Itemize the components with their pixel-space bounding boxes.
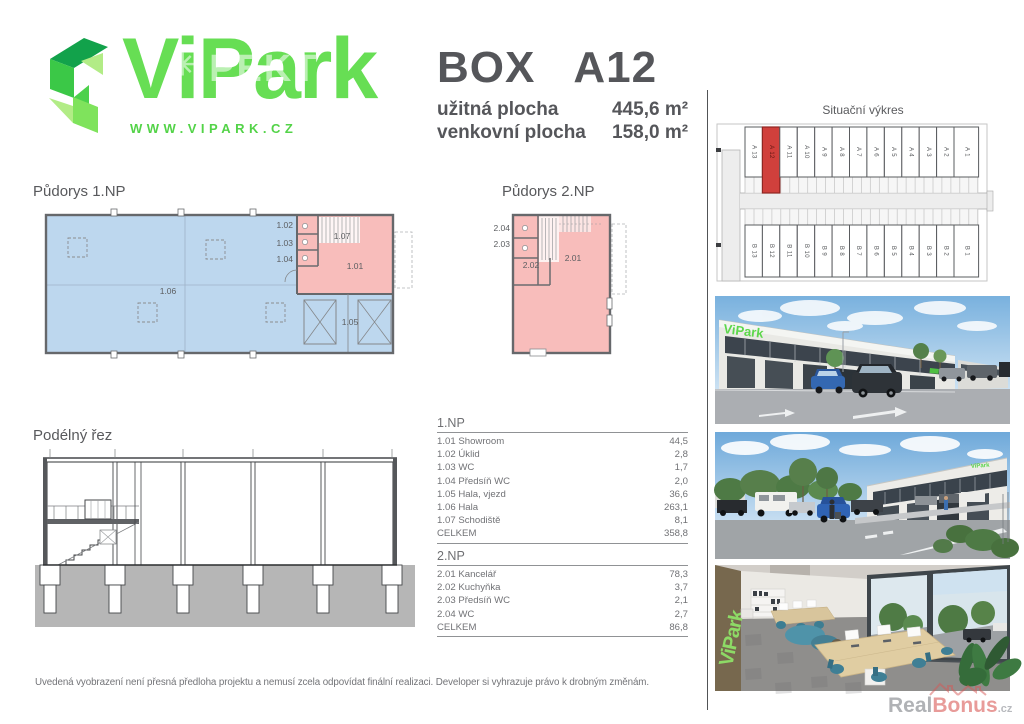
- fixture-1: [302, 223, 307, 228]
- situation-unit-label: B 2: [942, 246, 948, 256]
- photo-office-interior: ViPark: [715, 565, 1010, 691]
- room-label: 2.02: [523, 260, 540, 270]
- table-rows-2np: 2.01 Kancelář78,32.02 Kuchyňka3,72.03 Př…: [437, 566, 688, 637]
- room-area: 36,6: [669, 489, 688, 500]
- floorplan-2np-title: Půdorys 2.NP: [502, 183, 595, 200]
- right-wall: [393, 458, 397, 565]
- section-drawing: [35, 445, 425, 660]
- situation-unit-label: B 13: [751, 244, 757, 258]
- room-label: 2.03: [493, 239, 510, 249]
- table-title: 2.NP: [437, 549, 688, 566]
- area-table-2np: 2.NP 2.01 Kancelář78,32.02 Kuchyňka3,72.…: [437, 549, 688, 637]
- entrance-mark-2: [716, 243, 721, 247]
- vertical-divider: [707, 90, 708, 710]
- photo-exterior-street: ViPark: [715, 432, 1010, 559]
- room-area: 2,0: [675, 476, 688, 487]
- floorplan-2np-drawing: 2.04 2.03 2.02 2.01: [495, 205, 645, 367]
- situation-unit-label: B 8: [838, 246, 844, 256]
- area-office-pink: [514, 216, 609, 352]
- situation-unit-label: A 10: [803, 145, 809, 159]
- room-name: 1.02 Úklid: [437, 449, 480, 460]
- room-area: 86,8: [669, 622, 688, 633]
- room-area: 44,5: [669, 436, 688, 447]
- area-table-row: 1.04 Předsíň WC2,0: [437, 475, 688, 488]
- logo-shape-light-tri2: [49, 98, 73, 123]
- area-table-row: 1.03 WC1,7: [437, 461, 688, 474]
- floorplan-1np-drawing: 1.02 1.03 1.04 1.07 1.01 1.06 1.05: [35, 205, 427, 367]
- spec-label: venkovní plocha: [437, 123, 612, 144]
- room-label: 1.04: [276, 254, 293, 264]
- room-label: 1.06: [160, 286, 177, 296]
- room-name: 2.04 WC: [437, 609, 474, 620]
- realbonus-watermark: RealBonus.cz: [888, 681, 1018, 719]
- situation-unit-label: B 5: [890, 246, 896, 256]
- area-table-row: 2.04 WC2,7: [437, 608, 688, 621]
- situation-unit-label: B 9: [820, 246, 826, 256]
- spec-value: 445,6 m²: [612, 100, 688, 121]
- room-name: 2.03 Předsíň WC: [437, 595, 510, 606]
- situation-unit-label: A 12: [768, 145, 774, 159]
- room-label: 2.01: [565, 253, 582, 263]
- situation-unit-label: B 4: [908, 246, 914, 256]
- room-area: 2,8: [675, 449, 688, 460]
- bottom-detail: [530, 349, 546, 356]
- situation-unit-label: A 9: [820, 147, 826, 157]
- fixture-1: [522, 225, 527, 230]
- situation-unit-label: B 10: [803, 244, 809, 258]
- section-title: Podélný řez: [33, 427, 112, 444]
- situation-unit-label: A 3: [925, 147, 931, 157]
- room-name: CELKEM: [437, 622, 476, 633]
- room-name: 1.01 Showroom: [437, 436, 504, 447]
- realbonus-text: RealBonus.cz: [888, 694, 1012, 718]
- vipark-logo-icon: [30, 32, 122, 137]
- area-table-row: 2.02 Kuchyňka3,7: [437, 581, 688, 594]
- situation-unit-label: A 1: [963, 147, 969, 157]
- fixture-3: [302, 255, 307, 260]
- situation-row-b: B 13B 12B 11B 10B 9B 8B 7B 6B 5B 4B 3B 2…: [745, 225, 979, 277]
- room-label: 1.05: [342, 317, 359, 327]
- brand-website: WWW.VIPARK.CZ: [130, 121, 297, 136]
- photo-exterior-front-parking: ViPark: [715, 296, 1010, 424]
- situation-unit-a12: [762, 127, 779, 193]
- situation-unit-label: A 2: [942, 147, 948, 157]
- realbonus-suffix: .cz: [998, 703, 1013, 715]
- page-title: BOX A12: [437, 46, 657, 90]
- room-name: 1.05 Hala, vjezd: [437, 489, 506, 500]
- room-label: 1.07: [334, 231, 351, 241]
- box-label: BOX: [437, 46, 535, 90]
- floorplan-1np-title: Půdorys 1.NP: [33, 183, 126, 200]
- situation-unit-label: A 4: [908, 147, 914, 157]
- situation-unit-label: B 3: [925, 246, 931, 256]
- spec-outdoor-area: venkovní plocha 158,0 m²: [437, 123, 702, 144]
- room-area: 263,1: [664, 502, 688, 513]
- room-name: 1.06 Hala: [437, 502, 478, 513]
- brochure-page: ViPark WWW.VIPARK.CZ ✳ PEKT BOX A12 užit…: [0, 0, 1024, 724]
- area-table-row: 1.01 Showroom44,5: [437, 435, 688, 448]
- room-area: 78,3: [669, 569, 688, 580]
- situation-unit-label: A 13: [751, 145, 757, 159]
- situation-unit-label: B 12: [768, 244, 774, 258]
- situation-unit-label: A 6: [873, 147, 879, 157]
- room-label: 2.04: [493, 223, 510, 233]
- area-table-row: 1.02 Úklid2,8: [437, 448, 688, 461]
- room-label: 1.03: [276, 238, 293, 248]
- realbonus-red: Bonus: [932, 694, 997, 717]
- situation-drawing: A 13A 12A 11A 10A 9A 8A 7A 6A 5A 4A 3A 2…: [713, 120, 1013, 290]
- situation-unit-label: B 1: [963, 246, 969, 256]
- room-name: 2.01 Kancelář: [437, 569, 496, 580]
- logo-shape-bottom: [73, 97, 98, 133]
- situation-unit-label: B 6: [873, 246, 879, 256]
- spec-value: 158,0 m²: [612, 123, 688, 144]
- situation-unit-label: A 8: [838, 147, 844, 157]
- disclaimer-text: Uvedená vyobrazení není přesná předloha …: [35, 677, 649, 688]
- room-label: 1.02: [276, 220, 293, 230]
- realbonus-gray: Real: [888, 694, 932, 717]
- roof-ticks: [50, 449, 392, 458]
- area-table-1np: 1.NP 1.01 Showroom44,51.02 Úklid2,81.03 …: [437, 416, 688, 544]
- area-table-row: 2.01 Kancelář78,3: [437, 568, 688, 581]
- printer: [741, 609, 753, 618]
- situation-unit-label: A 7: [855, 147, 861, 157]
- area-table-row: CELKEM358,8: [437, 527, 688, 540]
- situation-unit-label: A 5: [890, 147, 896, 157]
- room-area: 2,7: [675, 609, 688, 620]
- entrance-mark-1: [716, 148, 721, 152]
- area-table-row: 1.05 Hala, vjezd36,6: [437, 488, 688, 501]
- unit-number: A12: [573, 46, 657, 90]
- left-wall: [43, 458, 47, 565]
- situation-unit-label: B 11: [786, 244, 792, 258]
- room-label: 1.01: [347, 261, 364, 271]
- room-area: 2,1: [675, 595, 688, 606]
- table-title: 1.NP: [437, 416, 688, 433]
- situation-unit-label: B 7: [855, 246, 861, 256]
- area-table-row: 2.03 Předsíň WC2,1: [437, 594, 688, 607]
- area-table-row: CELKEM86,8: [437, 621, 688, 634]
- room-name: 1.04 Předsíň WC: [437, 476, 510, 487]
- room-name: CELKEM: [437, 528, 476, 539]
- room-area: 1,7: [675, 462, 688, 473]
- terrace-dashed: [395, 232, 412, 288]
- fixture-2: [302, 239, 307, 244]
- table-rows-1np: 1.01 Showroom44,51.02 Úklid2,81.03 WC1,7…: [437, 433, 688, 544]
- situation-unit-label: A 11: [786, 145, 792, 158]
- room-area: 8,1: [675, 515, 688, 526]
- area-table-row: 1.07 Schodiště8,1: [437, 514, 688, 527]
- brand-wordmark: ViPark: [122, 26, 376, 112]
- terrace-dashed: [612, 224, 626, 294]
- site-road-exit: [987, 191, 993, 211]
- mezzanine-slab: [47, 519, 139, 524]
- fixture-2: [522, 245, 527, 250]
- room-name: 1.07 Schodiště: [437, 515, 500, 526]
- room-area: 358,8: [664, 528, 688, 539]
- ground: [35, 565, 415, 627]
- room-name: 1.03 WC: [437, 462, 474, 473]
- situation-title: Situační výkres: [715, 103, 1011, 117]
- room-area: 3,7: [675, 582, 688, 593]
- site-road-central: [740, 193, 990, 209]
- site-road-left: [722, 150, 740, 281]
- area-table-row: 1.06 Hala263,1: [437, 501, 688, 514]
- room-name: 2.02 Kuchyňka: [437, 582, 500, 593]
- spec-label: užitná plocha: [437, 100, 612, 121]
- spec-usable-area: užitná plocha 445,6 m²: [437, 100, 702, 121]
